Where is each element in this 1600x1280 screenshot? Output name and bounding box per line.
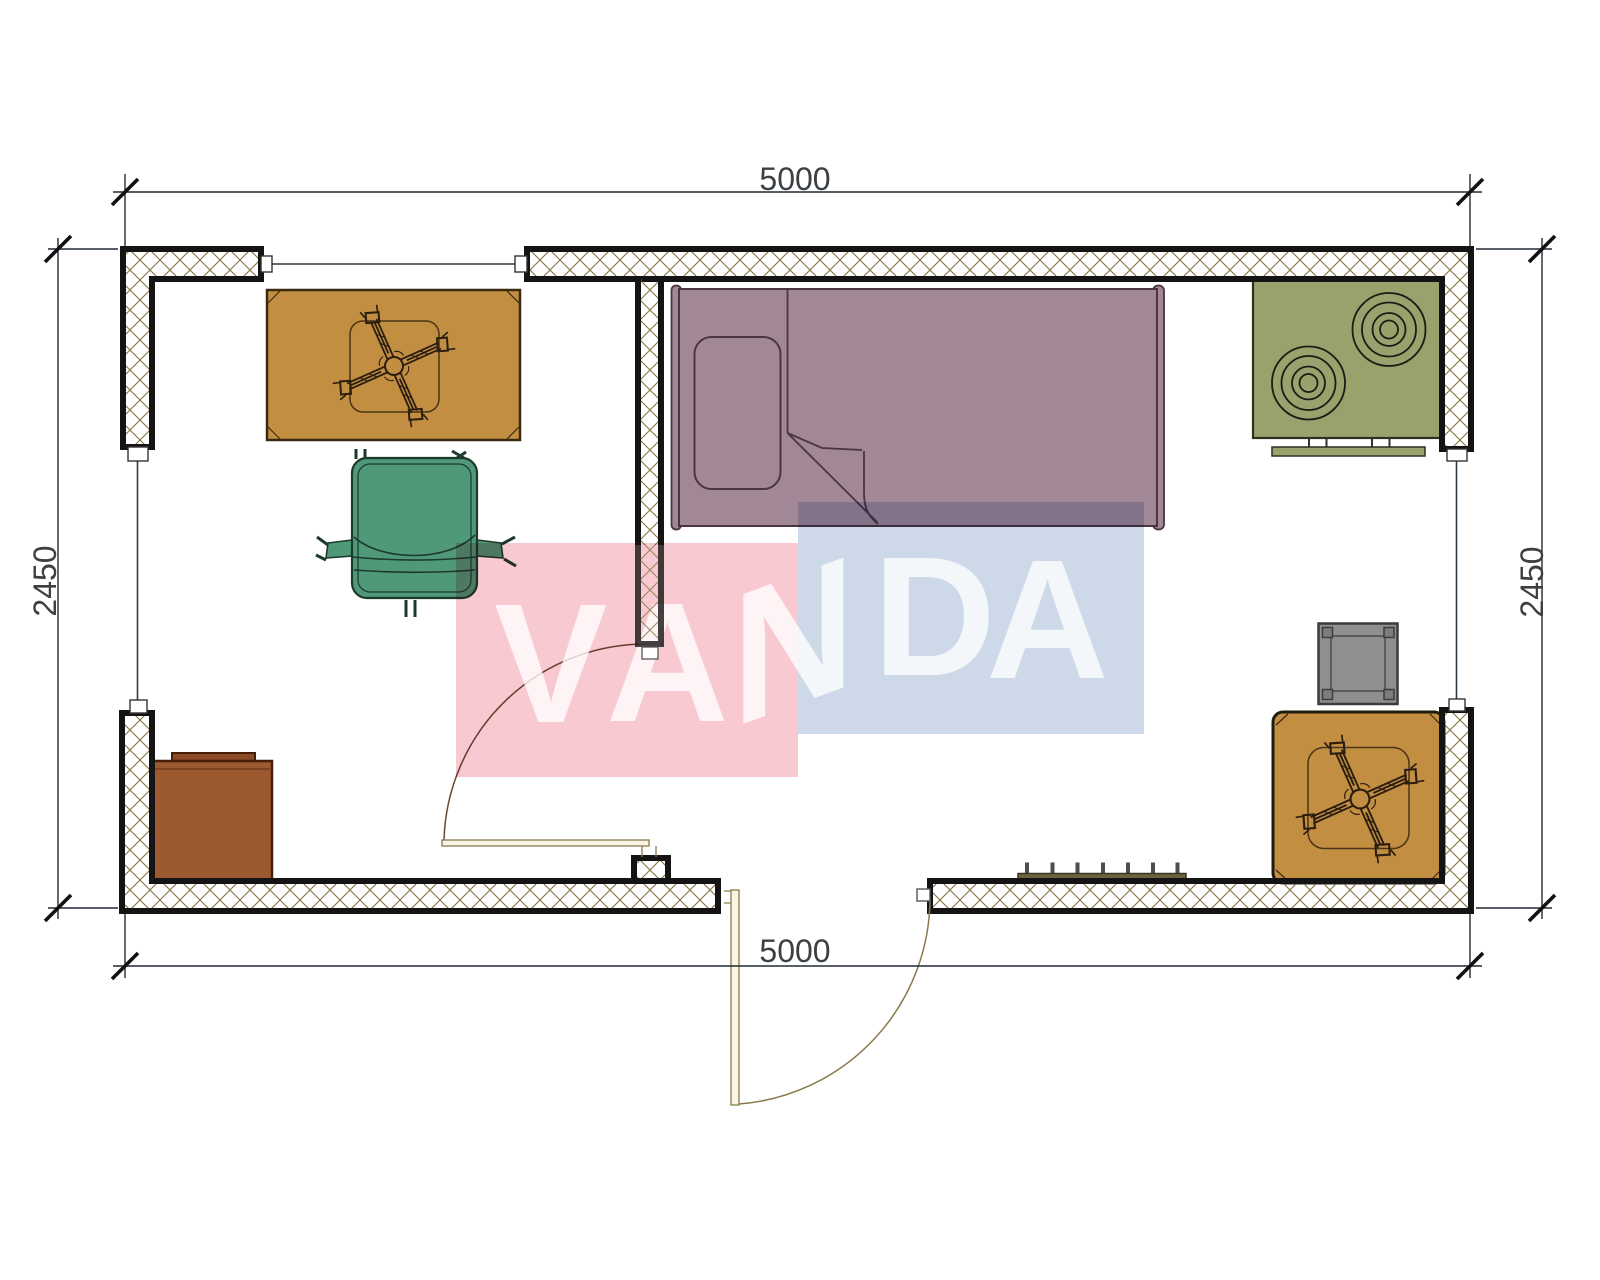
svg-text:2450: 2450 bbox=[1514, 546, 1550, 617]
svg-text:V: V bbox=[494, 569, 607, 759]
svg-text:A: A bbox=[986, 525, 1109, 715]
svg-text:N: N bbox=[732, 514, 855, 769]
svg-text:A: A bbox=[606, 568, 729, 758]
svg-text:D: D bbox=[873, 522, 996, 712]
svg-text:5000: 5000 bbox=[759, 933, 830, 969]
svg-text:2450: 2450 bbox=[27, 545, 63, 616]
svg-text:5000: 5000 bbox=[759, 161, 830, 197]
